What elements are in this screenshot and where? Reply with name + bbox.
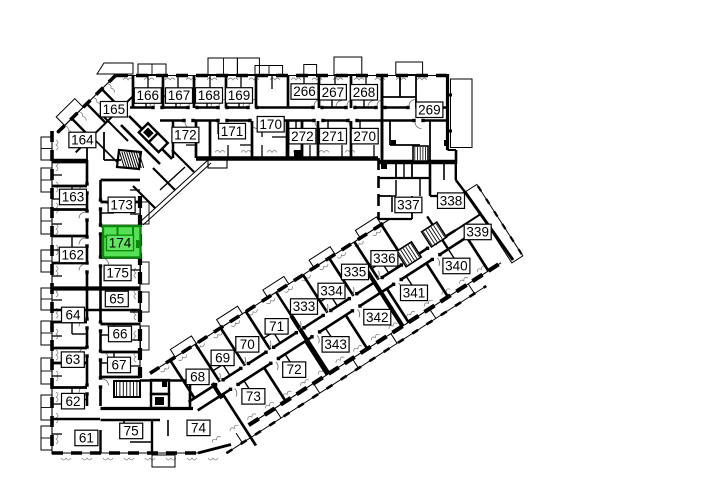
svg-text:171: 171 [221, 124, 244, 139]
svg-text:342: 342 [366, 310, 389, 325]
svg-text:68: 68 [190, 369, 205, 384]
svg-text:71: 71 [269, 319, 284, 334]
svg-text:173: 173 [110, 197, 133, 212]
svg-text:337: 337 [397, 198, 420, 213]
svg-text:63: 63 [65, 352, 80, 367]
svg-text:341: 341 [403, 285, 426, 300]
svg-text:163: 163 [62, 190, 85, 205]
svg-text:162: 162 [62, 248, 85, 263]
svg-text:266: 266 [293, 84, 316, 99]
svg-text:335: 335 [344, 265, 367, 280]
svg-text:73: 73 [246, 389, 261, 404]
svg-text:72: 72 [287, 362, 302, 377]
svg-text:267: 267 [322, 85, 345, 100]
svg-text:167: 167 [168, 88, 191, 103]
svg-text:270: 270 [353, 129, 376, 144]
svg-text:166: 166 [137, 88, 160, 103]
svg-text:170: 170 [259, 117, 282, 132]
svg-text:169: 169 [228, 88, 251, 103]
svg-text:69: 69 [215, 351, 230, 366]
svg-text:168: 168 [198, 88, 221, 103]
svg-text:64: 64 [65, 308, 81, 323]
svg-text:67: 67 [111, 358, 126, 373]
svg-text:165: 165 [103, 102, 126, 117]
svg-text:340: 340 [445, 259, 468, 274]
svg-text:174: 174 [109, 236, 132, 251]
svg-text:339: 339 [466, 225, 489, 240]
svg-text:65: 65 [109, 292, 124, 307]
svg-text:334: 334 [320, 284, 343, 299]
svg-text:62: 62 [65, 394, 80, 409]
svg-text:175: 175 [106, 266, 129, 281]
svg-text:268: 268 [353, 85, 376, 100]
svg-text:164: 164 [71, 133, 94, 148]
svg-text:172: 172 [174, 128, 197, 143]
svg-text:338: 338 [440, 193, 463, 208]
svg-text:333: 333 [293, 299, 316, 314]
svg-text:74: 74 [191, 421, 207, 436]
svg-text:61: 61 [79, 431, 94, 446]
svg-text:269: 269 [418, 102, 441, 117]
svg-text:66: 66 [112, 327, 127, 342]
svg-text:343: 343 [324, 337, 347, 352]
svg-text:336: 336 [373, 251, 396, 266]
svg-text:271: 271 [322, 129, 345, 144]
svg-text:70: 70 [240, 337, 255, 352]
svg-text:272: 272 [291, 129, 314, 144]
svg-text:75: 75 [124, 424, 139, 439]
